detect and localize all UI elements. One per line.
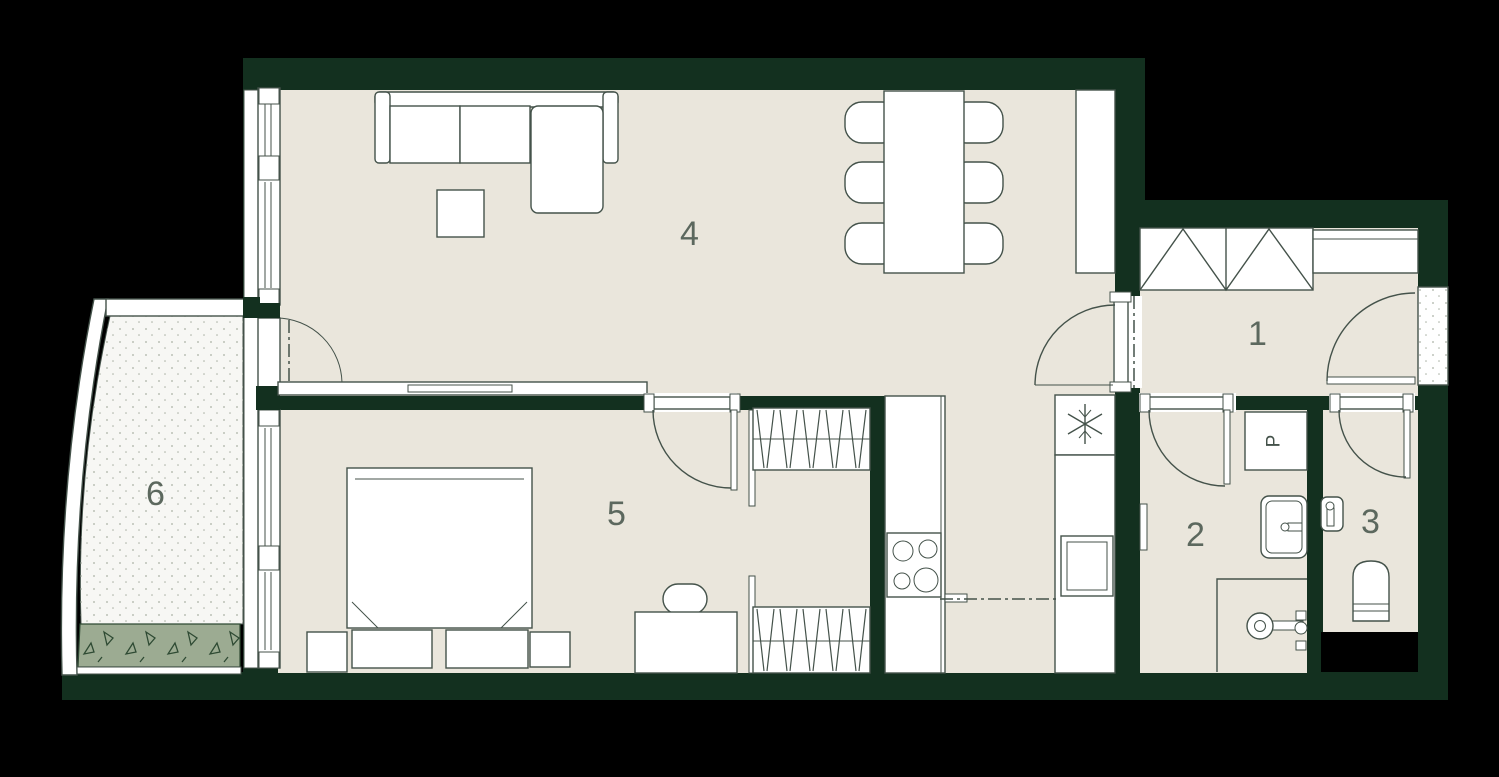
- window-mullion: [259, 546, 279, 570]
- entry-door-leaf: [1327, 377, 1415, 384]
- installation-shaft: [1321, 632, 1418, 672]
- floor-plan-svg: P: [0, 0, 1499, 777]
- balcony-edge-strip: [77, 667, 241, 674]
- living-window: [258, 88, 280, 305]
- sofa-seat-cushion: [390, 106, 460, 163]
- coffee-table: [437, 190, 484, 237]
- window-mullion: [259, 652, 279, 668]
- bed-mattress: [347, 468, 532, 628]
- railing-anchor: [243, 297, 260, 318]
- room-label-hall: 1: [1248, 315, 1268, 353]
- cooktop-burner: [893, 541, 913, 561]
- bathroom-door-leaf: [1224, 410, 1230, 484]
- balcony-planter-texture: [78, 624, 240, 667]
- window-mullion: [259, 88, 279, 104]
- sofa-chaise: [531, 106, 603, 213]
- wc-door-leaf: [1404, 410, 1410, 478]
- tv: [408, 385, 512, 392]
- window-mullion: [259, 410, 279, 426]
- wc-sink-faucet: [1327, 508, 1334, 526]
- nightstand: [307, 632, 347, 672]
- room-label-living: 4: [680, 215, 700, 253]
- bedroom-door-leaf: [731, 410, 737, 490]
- sofa-armrest: [375, 92, 390, 163]
- room-label-bathroom: 2: [1186, 516, 1206, 554]
- sofa-armrest: [603, 92, 618, 163]
- cooktop-burner: [919, 540, 937, 558]
- counter-ledge: [945, 594, 967, 602]
- floor-plan: P: [0, 0, 1499, 777]
- window-pier: [256, 386, 280, 410]
- desk: [635, 612, 737, 673]
- sofa-seat-cushion: [460, 106, 530, 163]
- hall-shelf-cabinet: [1313, 230, 1418, 273]
- bedroom-door-opening: [654, 397, 730, 409]
- sink-faucet: [1288, 523, 1302, 531]
- kitchen-tall-cabinet: [1076, 90, 1115, 273]
- nightstand: [530, 632, 570, 667]
- bedroom-window: [258, 410, 280, 668]
- balcony-top-rail: [106, 299, 245, 316]
- living-hall-door-leaf: [1114, 298, 1128, 384]
- window-mullion: [259, 156, 279, 180]
- towel-radiator: [1140, 504, 1147, 550]
- window-sill-strip: [244, 90, 258, 668]
- oven-door: [1067, 542, 1107, 590]
- sofa-backrest: [375, 92, 618, 107]
- cooktop-burner: [914, 568, 938, 592]
- room-label-bedroom: 5: [607, 495, 627, 533]
- bottom-wall-extension: [62, 672, 243, 700]
- wc-door-opening: [1339, 397, 1404, 409]
- bed-pillow: [352, 630, 432, 668]
- window-mullion: [259, 289, 279, 305]
- toilet: [1353, 561, 1389, 621]
- shower-mixer: [1296, 641, 1306, 650]
- shower-mixer: [1296, 611, 1306, 620]
- room-label-balcony: 6: [146, 475, 166, 513]
- balcony-floor-speckle: [80, 316, 243, 624]
- bathroom-door-opening: [1149, 397, 1224, 409]
- cooktop-burner: [894, 573, 910, 589]
- washing-machine-label: P: [1264, 435, 1285, 448]
- bed-pillow: [446, 630, 528, 668]
- balcony-door-leaf: [258, 318, 280, 388]
- room-label-wc: 3: [1361, 503, 1381, 541]
- desk-chair: [663, 584, 707, 614]
- dining-table: [884, 91, 964, 273]
